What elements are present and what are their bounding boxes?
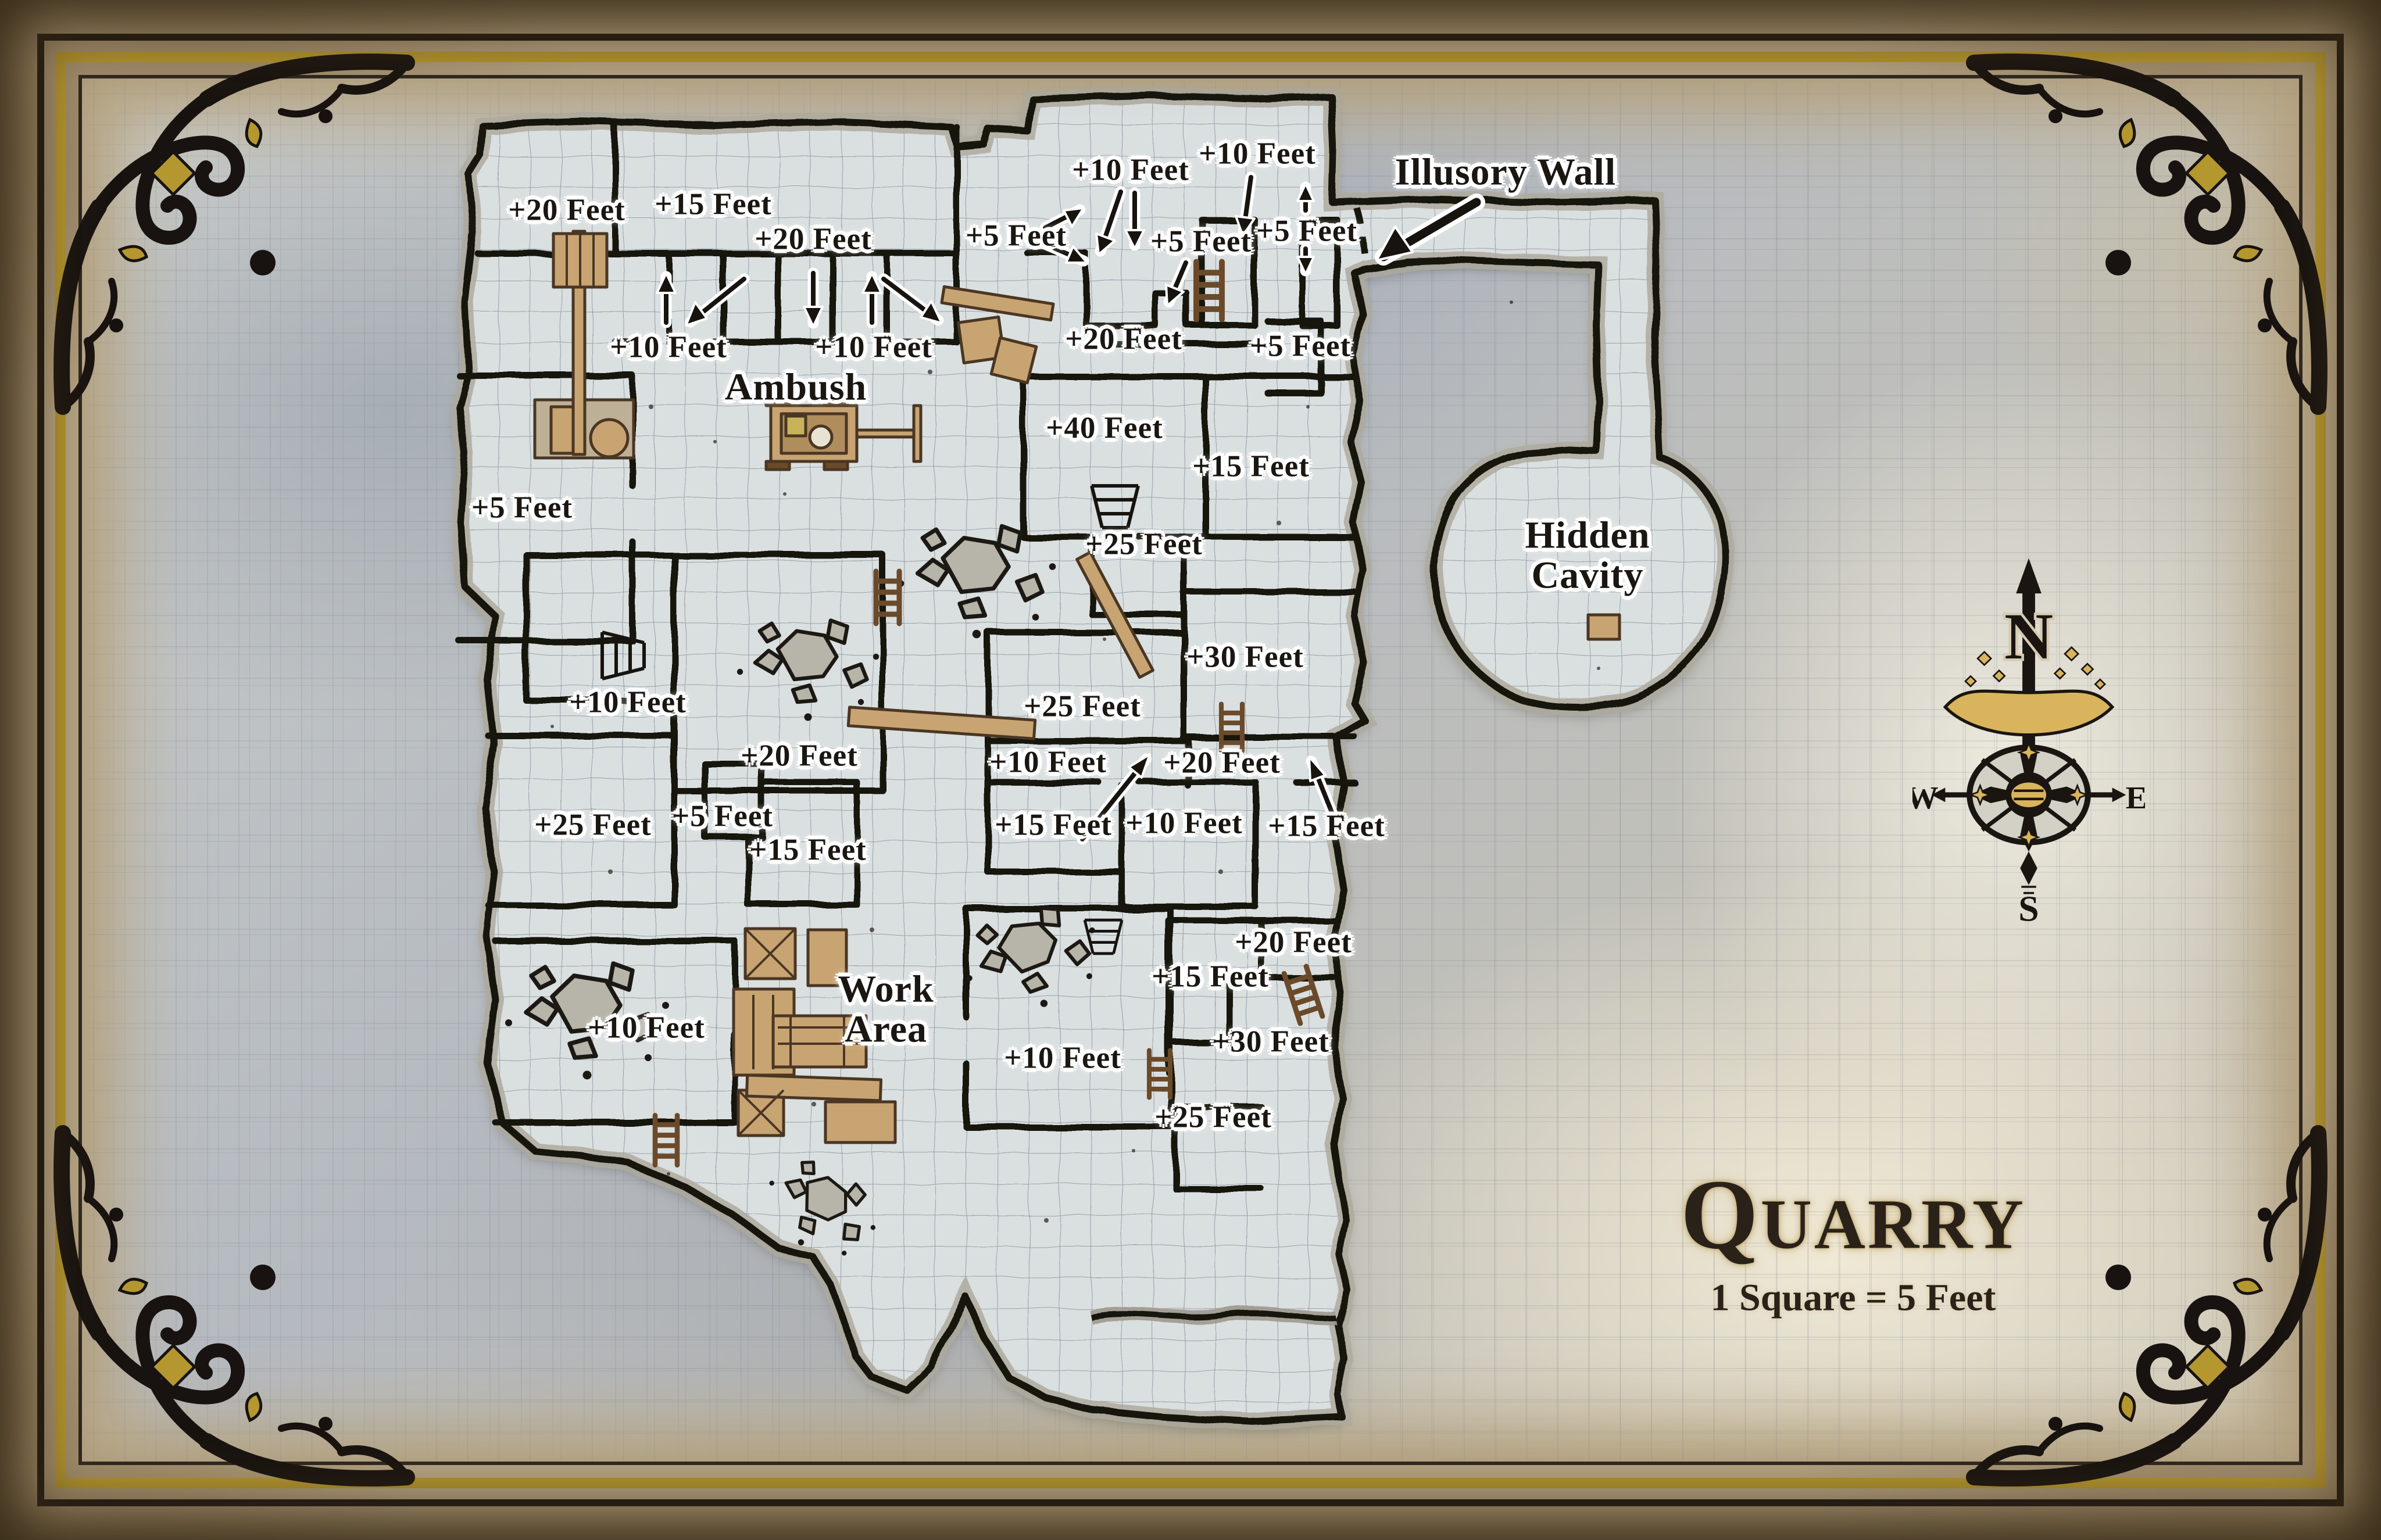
cart-wheel-icon <box>766 397 789 406</box>
work-table-icon <box>825 1102 895 1143</box>
compass-east-label: E <box>2126 780 2145 815</box>
crate-icon <box>991 338 1036 383</box>
crane-gear-icon <box>591 420 628 457</box>
compass-north-label: N <box>2004 599 2053 673</box>
cart-wheel-icon <box>824 461 848 470</box>
quarry-map-page: +20 Feet+15 Feet+20 Feet+10 Feet+10 Feet… <box>0 0 2381 1540</box>
map-scale-note: 1 Square = 5 Feet <box>1681 1276 2026 1320</box>
cart-wheel-icon <box>766 461 789 470</box>
crate-icon <box>1588 615 1619 639</box>
cart-wheel-icon <box>824 397 848 406</box>
compass-south-label: S <box>2018 889 2039 924</box>
map-title: Quarry <box>1681 1158 2026 1273</box>
crescent-moon-icon <box>1945 691 2112 735</box>
cart-handle-icon <box>857 430 917 437</box>
compass-rose-icon: N W E S <box>1912 552 2145 924</box>
timber-bundle-icon <box>773 1016 866 1067</box>
crate-icon <box>808 930 846 986</box>
title-block: Quarry 1 Square = 5 Feet <box>1681 1158 2026 1320</box>
compass-west-label: W <box>1912 780 1939 815</box>
plank-icon <box>746 1075 881 1101</box>
